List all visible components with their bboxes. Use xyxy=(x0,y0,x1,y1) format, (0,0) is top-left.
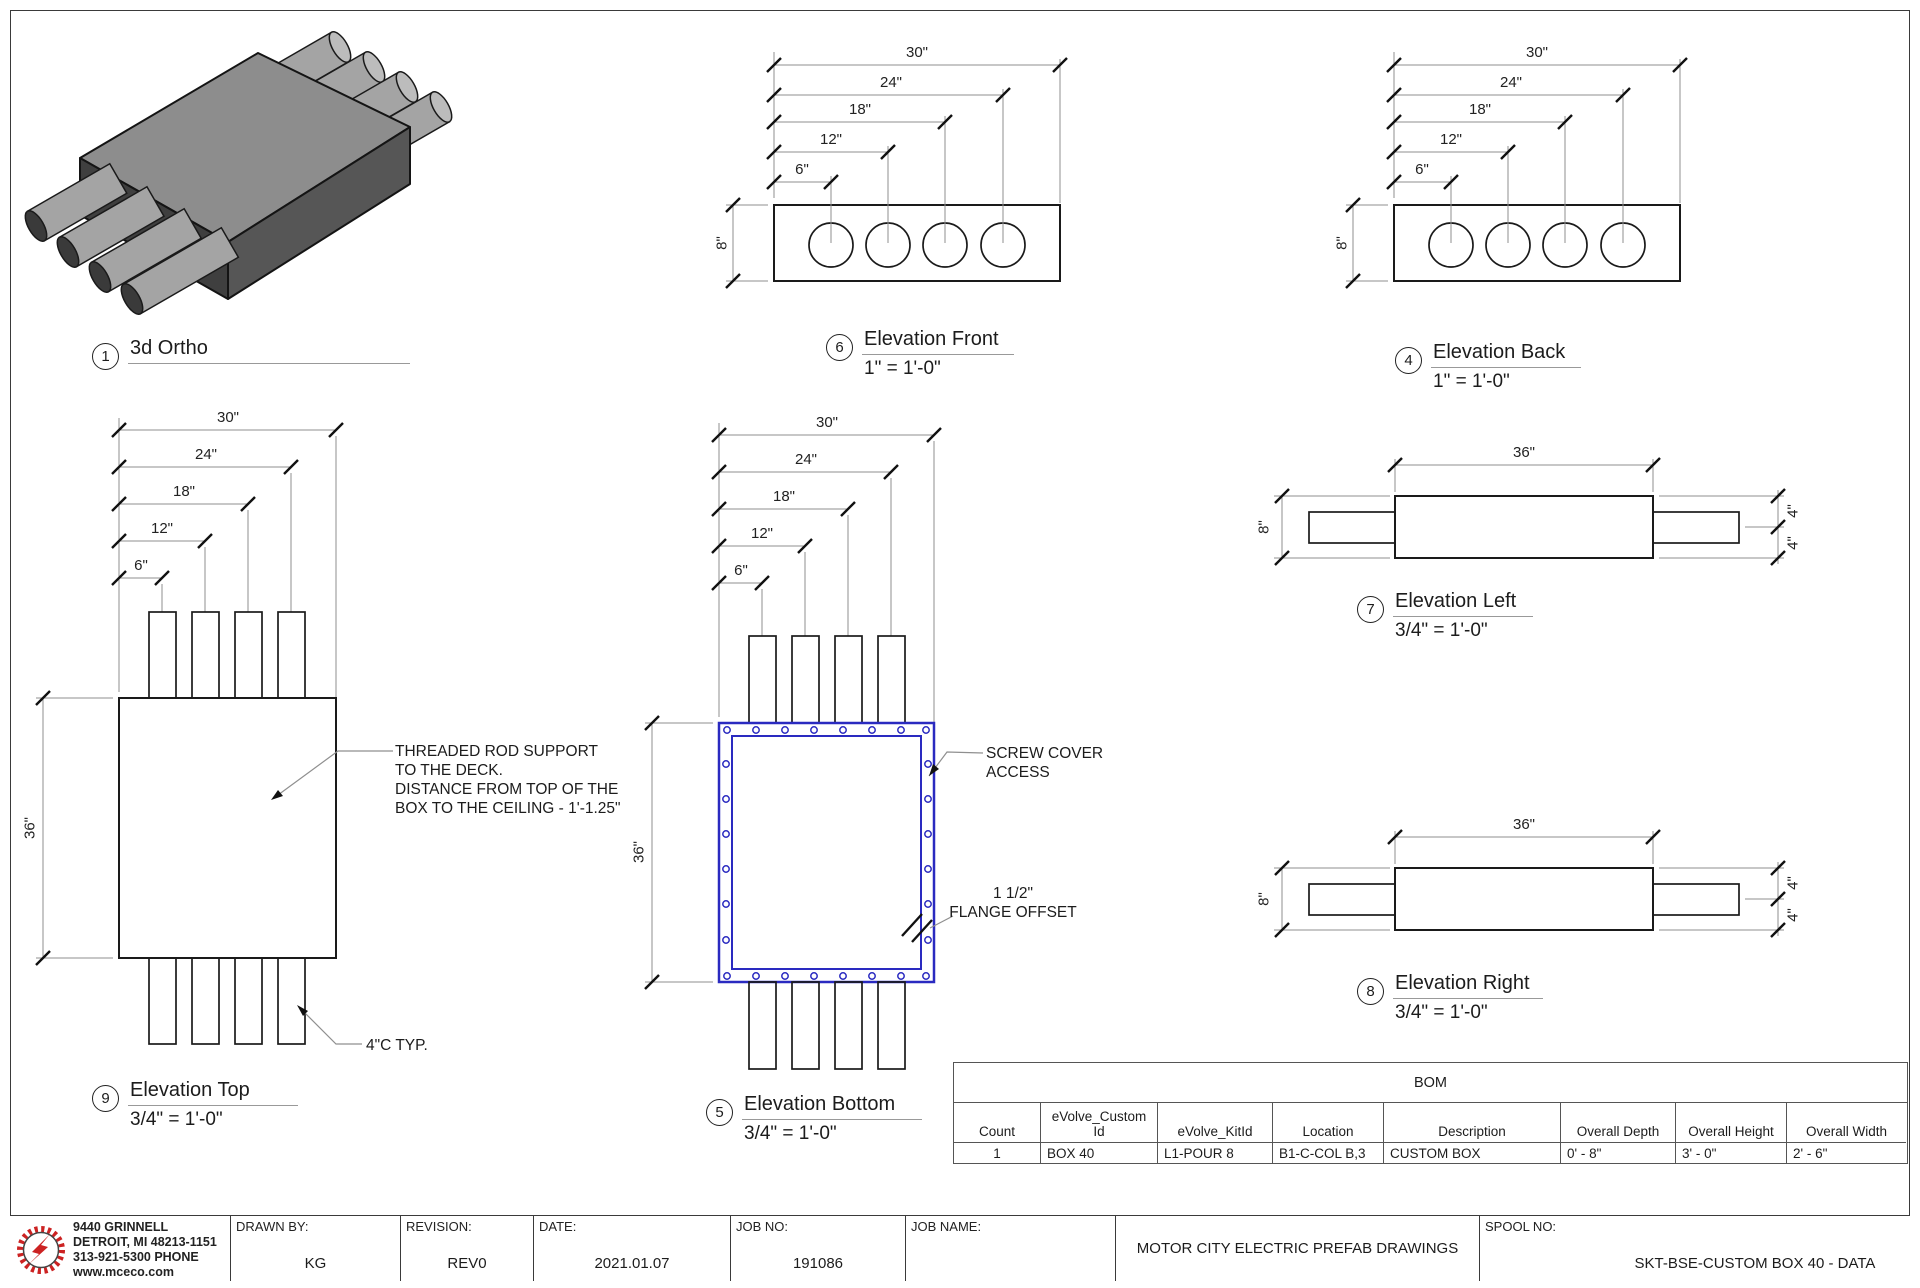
dim-top-30: 30" xyxy=(217,409,239,426)
date-cell: DATE: 2021.01.07 xyxy=(533,1216,730,1281)
note-threaded-rod: THREADED ROD SUPPORT TO THE DECK. DISTAN… xyxy=(395,742,621,818)
dim-front-12: 12" xyxy=(820,131,842,148)
dim-back-8: 8" xyxy=(1334,236,1351,250)
dim-back-18: 18" xyxy=(1469,101,1491,118)
view-label-right: 8 Elevation Right 3/4" = 1'-0" xyxy=(1357,972,1543,1024)
dim-bottom-12: 12" xyxy=(751,525,773,542)
title-block: 9440 GRINNELL DETROIT, MI 48213-1151 313… xyxy=(10,1215,1910,1281)
job-name-label: JOB NAME: xyxy=(911,1219,981,1234)
elevation-left-drawing xyxy=(1274,458,1785,565)
revision-cell: REVISION: REV0 xyxy=(400,1216,533,1281)
bom-col-width: Overall Width xyxy=(1786,1103,1906,1143)
revision-value: REV0 xyxy=(401,1255,533,1272)
company-name-cell: MOTOR CITY ELECTRIC PREFAB DRAWINGS xyxy=(1115,1216,1479,1281)
dim-top-12: 12" xyxy=(151,520,173,537)
dim-bottom-18: 18" xyxy=(773,488,795,505)
dim-top-6: 6" xyxy=(134,557,148,574)
spool-no-cell: SPOOL NO: SKT-BSE-CUSTOM BOX 40 - DATA xyxy=(1479,1216,1910,1281)
dim-right-4a: 4" xyxy=(1785,876,1802,890)
view-number-top: 9 xyxy=(92,1085,119,1112)
drawn-by-value: KG xyxy=(231,1255,400,1272)
view-title-front: Elevation Front xyxy=(862,328,1014,355)
bom-data-row: 1 BOX 40 L1-POUR 8 B1-C-COL B,3 CUSTOM B… xyxy=(954,1143,1907,1163)
dim-front-24: 24" xyxy=(880,74,902,91)
job-name-cell: JOB NAME: xyxy=(905,1216,1115,1281)
view-label-back: 4 Elevation Back 1" = 1'-0" xyxy=(1395,341,1581,393)
view-scale-front: 1" = 1'-0" xyxy=(862,355,1014,380)
view-number-bottom: 5 xyxy=(706,1099,733,1126)
view-label-left: 7 Elevation Left 3/4" = 1'-0" xyxy=(1357,590,1533,642)
bom-cell-height: 3' - 0" xyxy=(1675,1143,1786,1163)
note-screw-cover: SCREW COVER ACCESS xyxy=(986,744,1103,782)
bom-col-height: Overall Height xyxy=(1675,1103,1786,1143)
date-value: 2021.01.07 xyxy=(534,1255,730,1272)
view-label-ortho: 1 3d Ortho xyxy=(92,337,410,370)
elevation-right-drawing xyxy=(1274,830,1785,937)
company-address-cell: 9440 GRINNELL DETROIT, MI 48213-1151 313… xyxy=(10,1216,230,1281)
dim-right-8: 8" xyxy=(1256,892,1273,906)
view-scale-left: 3/4" = 1'-0" xyxy=(1393,617,1533,642)
view-label-top: 9 Elevation Top 3/4" = 1'-0" xyxy=(92,1079,298,1131)
view-number-front: 6 xyxy=(826,334,853,361)
screw-circles xyxy=(723,727,931,979)
dim-front-6: 6" xyxy=(795,161,809,178)
view-label-front: 6 Elevation Front 1" = 1'-0" xyxy=(826,328,1014,380)
view-scale-back: 1" = 1'-0" xyxy=(1431,368,1581,393)
company-name: MOTOR CITY ELECTRIC PREFAB DRAWINGS xyxy=(1116,1216,1479,1281)
view-title-ortho: 3d Ortho xyxy=(128,337,410,364)
dim-left-4a: 4" xyxy=(1785,504,1802,518)
dim-front-8: 8" xyxy=(714,236,731,250)
bom-cell-width: 2' - 6" xyxy=(1786,1143,1906,1163)
view-title-right: Elevation Right xyxy=(1393,972,1543,999)
bom-col-custom-id: eVolve_Custom Id xyxy=(1040,1103,1157,1143)
drawn-by-label: DRAWN BY: xyxy=(236,1219,308,1234)
job-no-cell: JOB NO: 191086 xyxy=(730,1216,905,1281)
view-number-ortho: 1 xyxy=(92,343,119,370)
bom-col-description: Description xyxy=(1383,1103,1560,1143)
dim-back-24: 24" xyxy=(1500,74,1522,91)
view-scale-top: 3/4" = 1'-0" xyxy=(128,1106,298,1131)
bom-col-kitid: eVolve_KitId xyxy=(1157,1103,1272,1143)
dim-right-36: 36" xyxy=(1513,816,1535,833)
dim-bottom-6: 6" xyxy=(734,562,748,579)
bom-header-row: Count eVolve_Custom Id eVolve_KitId Loca… xyxy=(954,1103,1907,1143)
dim-front-30: 30" xyxy=(906,44,928,61)
elevation-bottom-drawing xyxy=(645,423,983,1069)
view-number-back: 4 xyxy=(1395,347,1422,374)
ortho-view-drawing xyxy=(21,29,456,318)
view-number-left: 7 xyxy=(1357,596,1384,623)
view-scale-bottom: 3/4" = 1'-0" xyxy=(742,1120,922,1145)
company-address: 9440 GRINNELL DETROIT, MI 48213-1151 313… xyxy=(73,1220,217,1280)
dim-back-12: 12" xyxy=(1440,131,1462,148)
bom-col-location: Location xyxy=(1272,1103,1383,1143)
revision-label: REVISION: xyxy=(406,1219,472,1234)
spool-no-label: SPOOL NO: xyxy=(1485,1219,1556,1234)
dim-back-30: 30" xyxy=(1526,44,1548,61)
drawing-sheet: 6" 12" 18" 24" 30" 8" 6" 12" 18" 24" 30"… xyxy=(0,0,1920,1288)
drawn-by-cell: DRAWN BY: KG xyxy=(230,1216,400,1281)
dim-right-4b: 4" xyxy=(1785,908,1802,922)
dim-front-18: 18" xyxy=(849,101,871,118)
dim-left-36: 36" xyxy=(1513,444,1535,461)
job-no-value: 191086 xyxy=(731,1255,905,1272)
dim-bottom-36: 36" xyxy=(631,841,648,863)
bom-title: BOM xyxy=(954,1063,1907,1103)
bom-cell-count: 1 xyxy=(954,1143,1040,1163)
dim-top-18: 18" xyxy=(173,483,195,500)
dim-top-36: 36" xyxy=(22,817,39,839)
dim-left-8: 8" xyxy=(1256,520,1273,534)
note-flange-offset: 1 1/2" FLANGE OFFSET xyxy=(949,884,1076,922)
note-conduit-typ: 4"C TYP. xyxy=(366,1036,428,1055)
bom-table: BOM Count eVolve_Custom Id eVolve_KitId … xyxy=(953,1062,1908,1164)
bom-cell-kitid: L1-POUR 8 xyxy=(1157,1143,1272,1163)
job-no-label: JOB NO: xyxy=(736,1219,788,1234)
dim-back-6: 6" xyxy=(1415,161,1429,178)
elevation-top-drawing xyxy=(36,418,393,1044)
bom-cell-custom-id: BOX 40 xyxy=(1040,1143,1157,1163)
view-title-back: Elevation Back xyxy=(1431,341,1581,368)
view-title-left: Elevation Left xyxy=(1393,590,1533,617)
date-label: DATE: xyxy=(539,1219,576,1234)
view-scale-right: 3/4" = 1'-0" xyxy=(1393,999,1543,1024)
company-logo-icon xyxy=(15,1224,67,1276)
view-number-right: 8 xyxy=(1357,978,1384,1005)
dim-top-24: 24" xyxy=(195,446,217,463)
bom-col-depth: Overall Depth xyxy=(1560,1103,1675,1143)
bom-col-count: Count xyxy=(954,1103,1040,1143)
dim-bottom-24: 24" xyxy=(795,451,817,468)
spool-no-value: SKT-BSE-CUSTOM BOX 40 - DATA xyxy=(1480,1255,1910,1272)
bom-cell-description: CUSTOM BOX xyxy=(1383,1143,1560,1163)
dim-bottom-30: 30" xyxy=(816,414,838,431)
view-label-bottom: 5 Elevation Bottom 3/4" = 1'-0" xyxy=(706,1093,922,1145)
view-title-top: Elevation Top xyxy=(128,1079,298,1106)
dim-left-4b: 4" xyxy=(1785,536,1802,550)
view-title-bottom: Elevation Bottom xyxy=(742,1093,922,1120)
bom-cell-location: B1-C-COL B,3 xyxy=(1272,1143,1383,1163)
bom-cell-depth: 0' - 8" xyxy=(1560,1143,1675,1163)
